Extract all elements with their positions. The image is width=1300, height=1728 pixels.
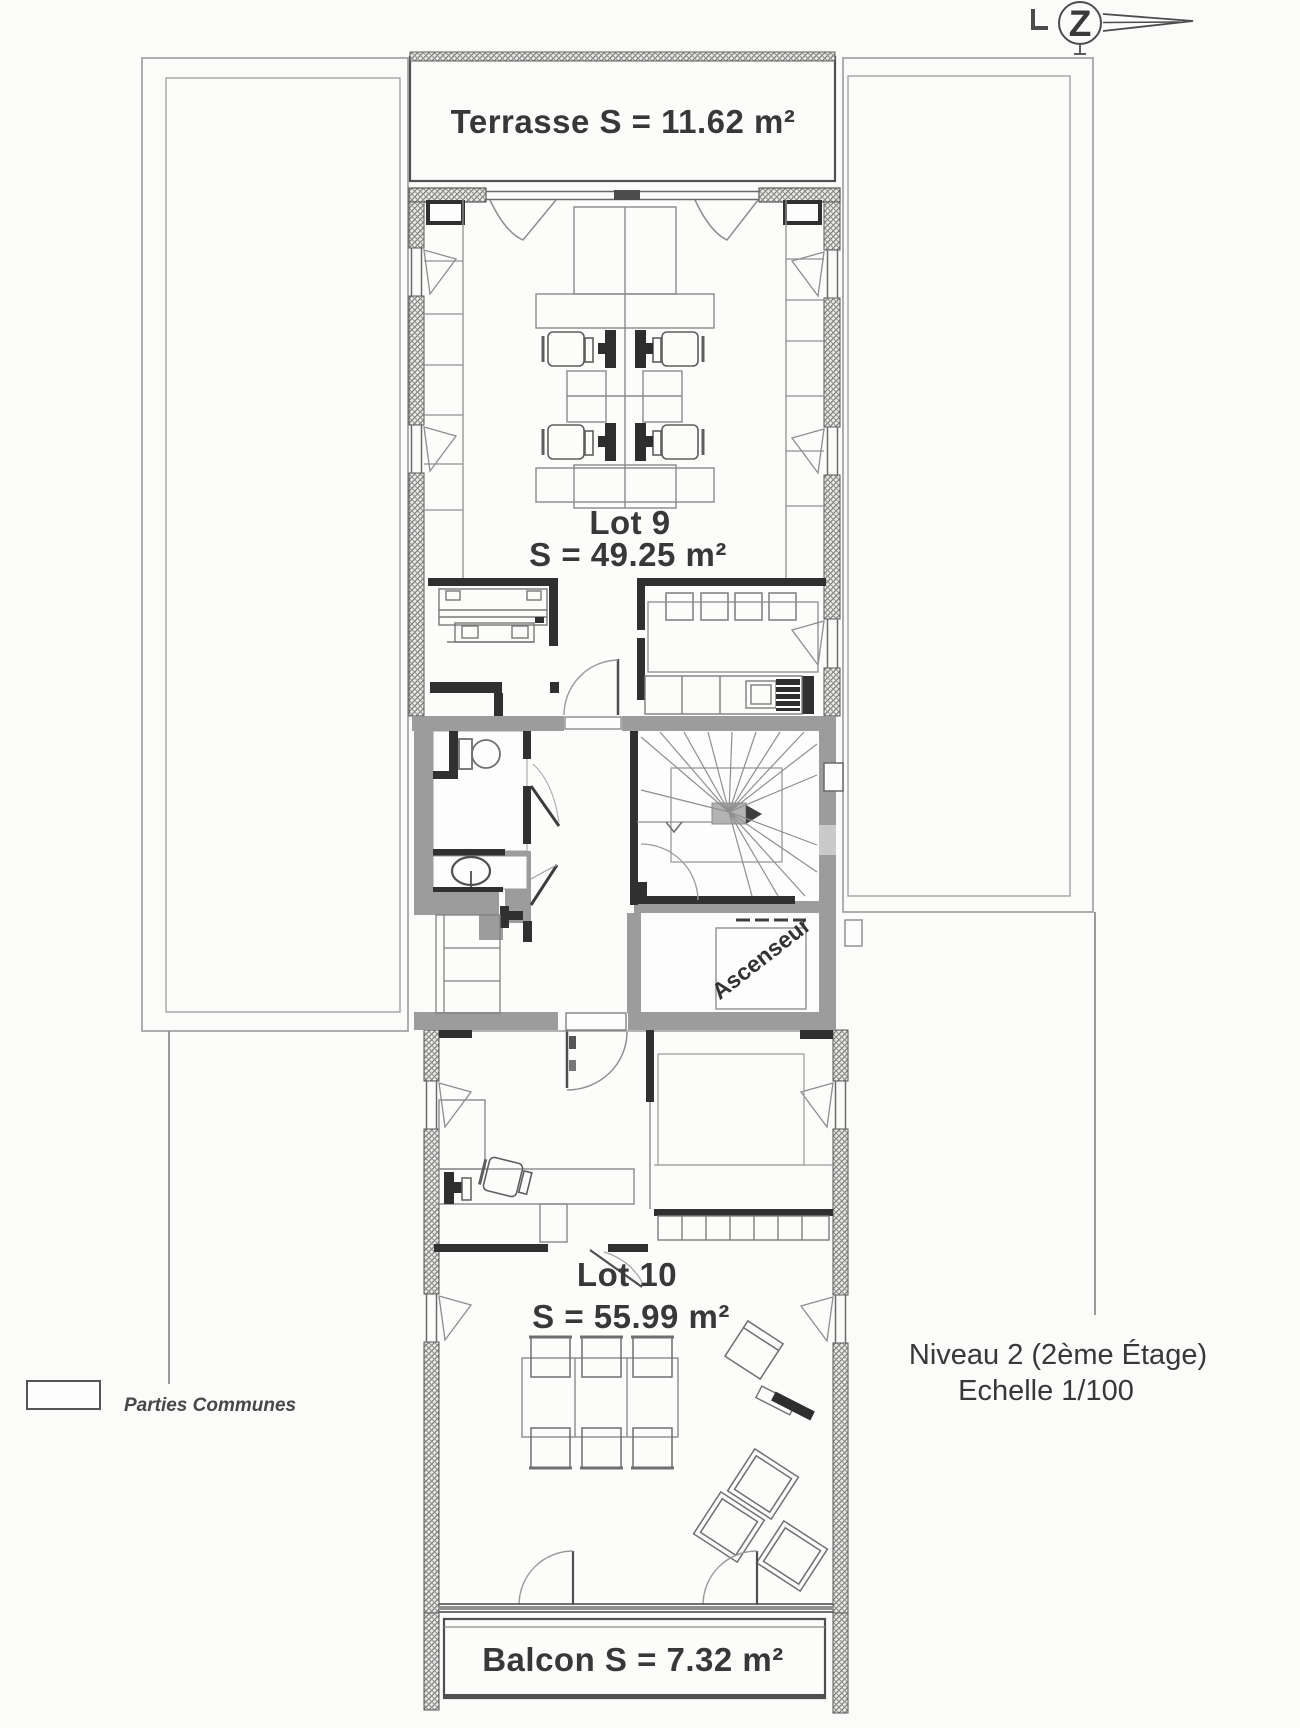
svg-text:Lot 10: Lot 10 bbox=[577, 1256, 677, 1293]
svg-text:Z: Z bbox=[1069, 3, 1092, 44]
svg-text:S = 49.25 m²: S = 49.25 m² bbox=[529, 536, 727, 573]
svg-text:S = 55.99 m²: S = 55.99 m² bbox=[532, 1298, 730, 1335]
svg-text:Echelle 1/100: Echelle 1/100 bbox=[958, 1375, 1134, 1407]
svg-text:Terrasse S = 11.62 m²: Terrasse S = 11.62 m² bbox=[451, 103, 796, 140]
svg-text:Balcon S = 7.32 m²: Balcon S = 7.32 m² bbox=[482, 1641, 784, 1678]
svg-text:Parties Communes: Parties Communes bbox=[124, 1395, 296, 1416]
svg-text:Niveau 2 (2ème Étage): Niveau 2 (2ème Étage) bbox=[909, 1338, 1207, 1371]
